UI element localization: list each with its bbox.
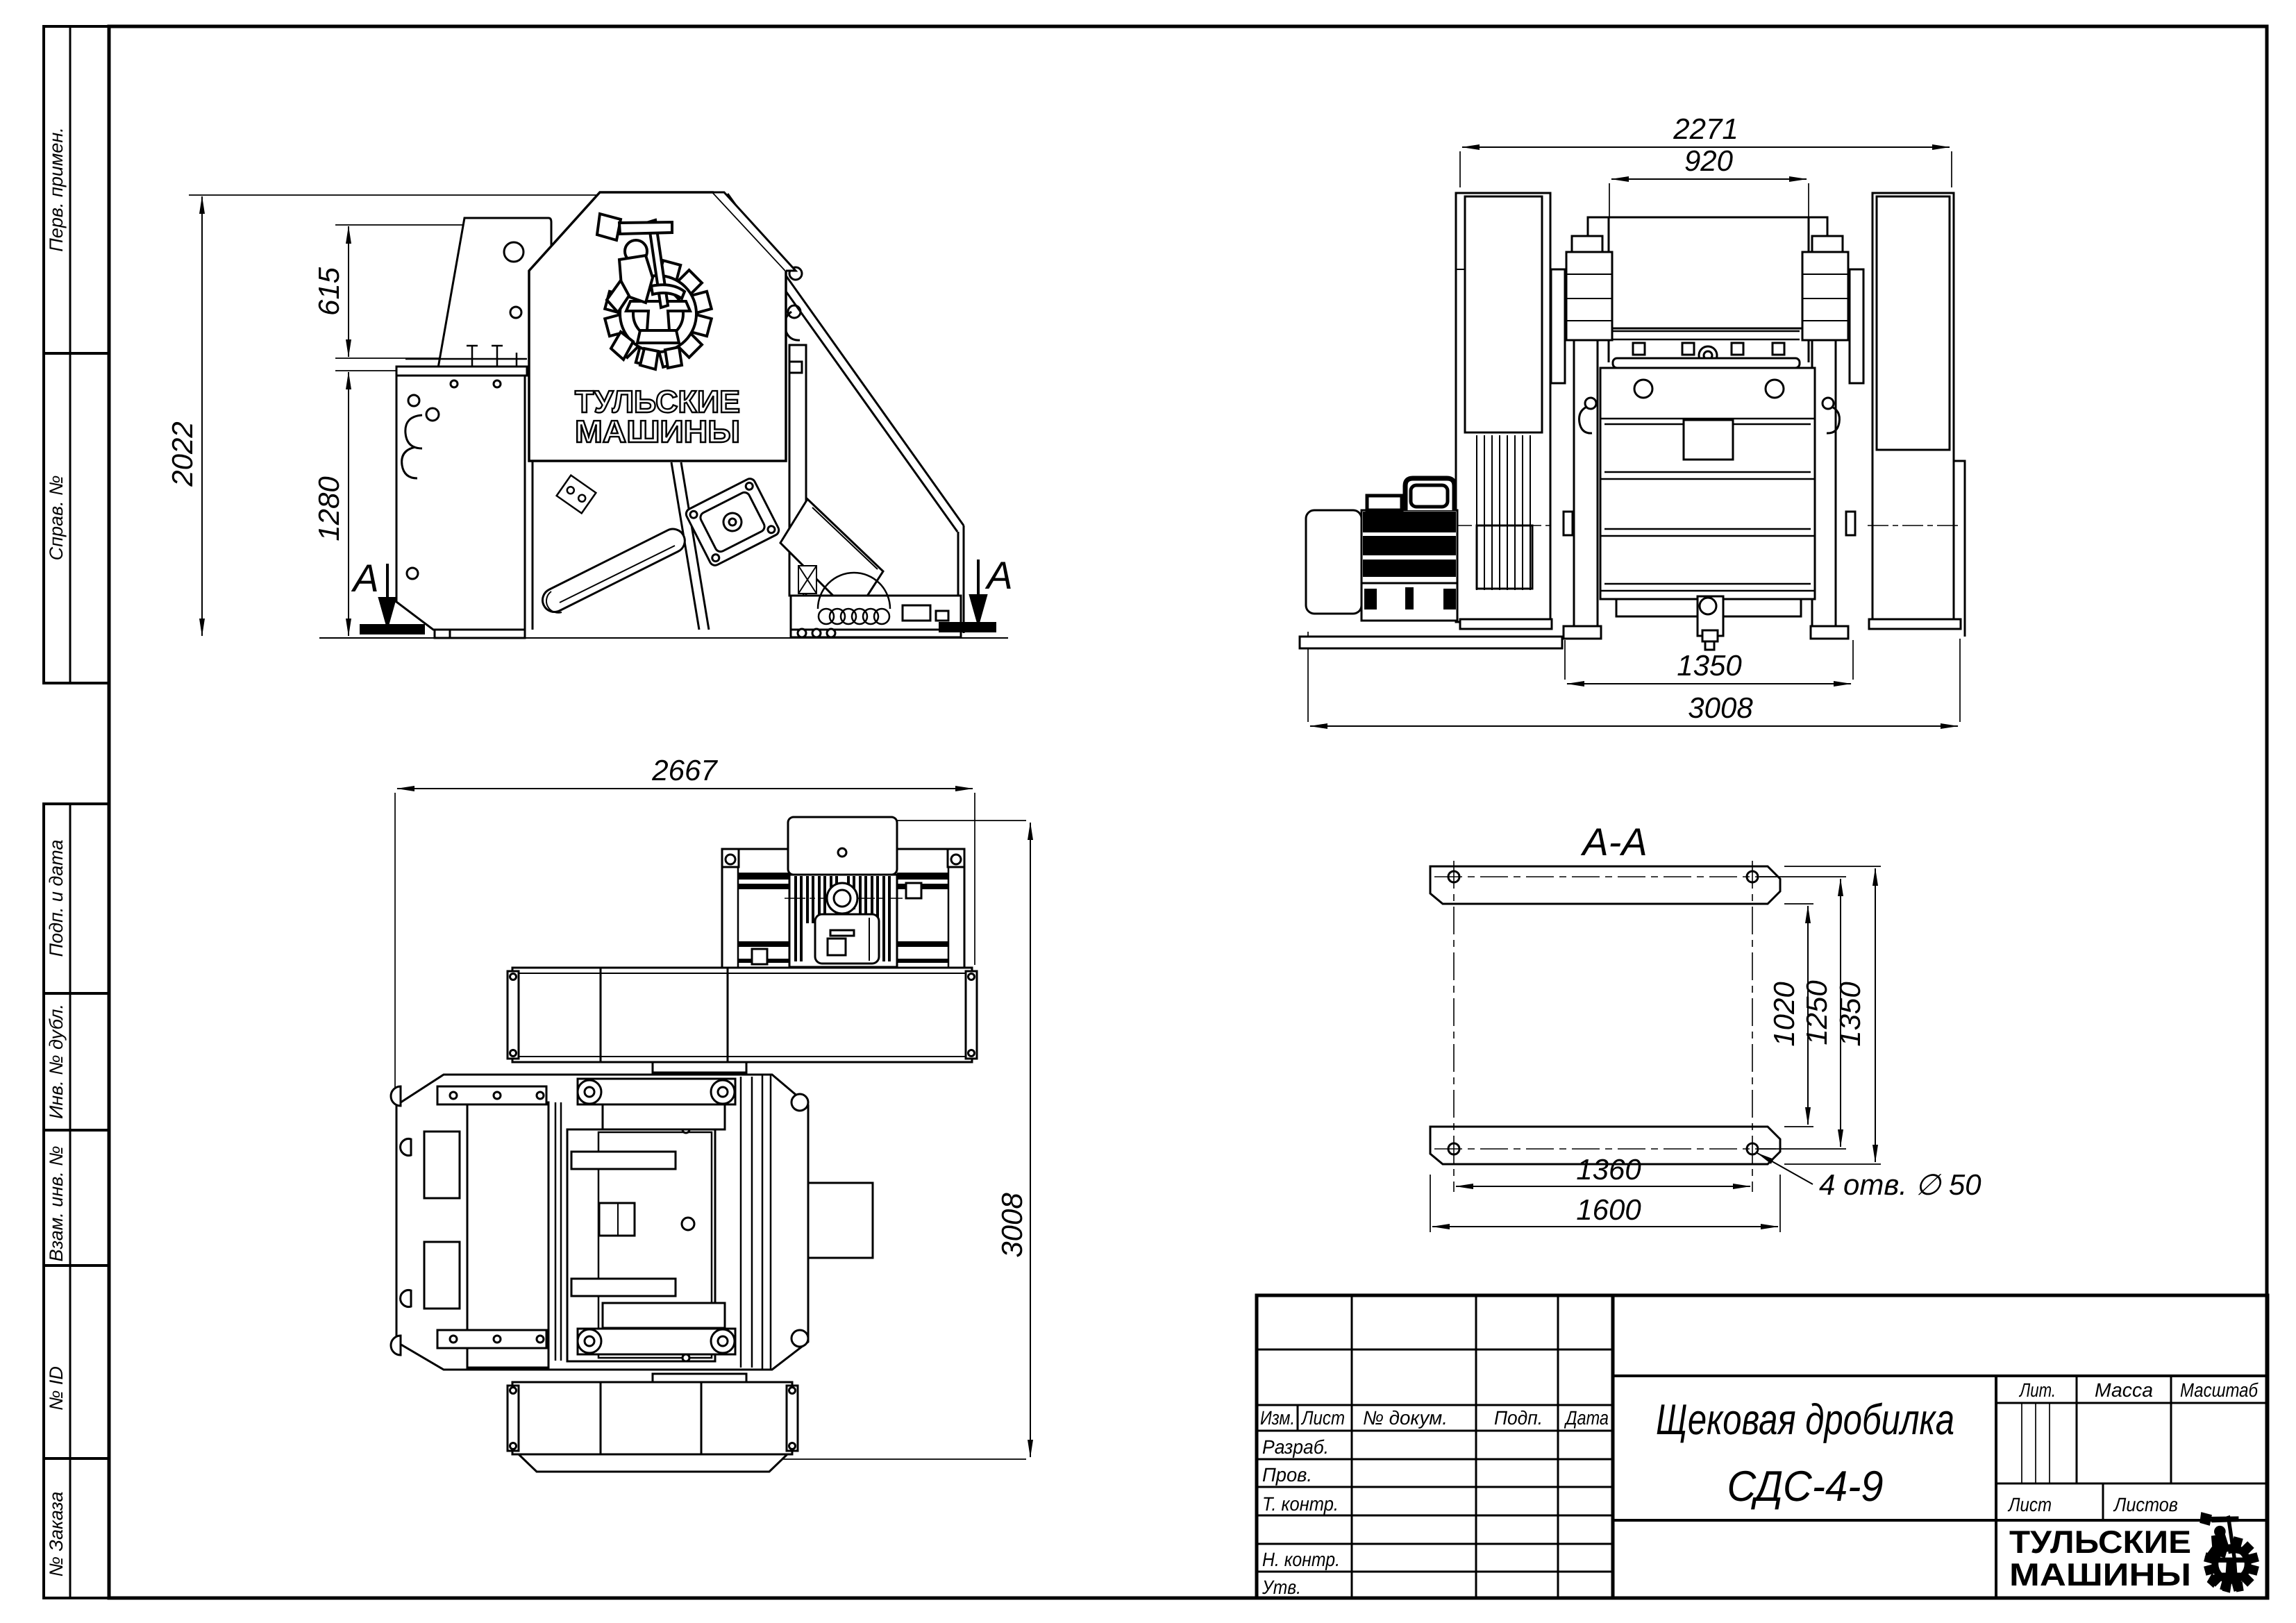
svg-text:Т. контр.: Т. контр.: [1262, 1493, 1339, 1515]
svg-text:Щековая дробилка: Щековая дробилка: [1656, 1396, 1954, 1444]
svg-text:4 отв. ∅ 50: 4 отв. ∅ 50: [1819, 1168, 1981, 1201]
svg-text:№ ID: № ID: [46, 1366, 67, 1411]
svg-text:МАШИНЫ: МАШИНЫ: [2009, 1556, 2191, 1592]
svg-text:2022: 2022: [166, 421, 199, 487]
svg-text:№ Заказа: № Заказа: [46, 1492, 67, 1577]
svg-text:А-А: А-А: [1580, 820, 1647, 864]
svg-text:А: А: [351, 556, 378, 600]
svg-text:Подп.: Подп.: [1494, 1407, 1543, 1429]
svg-text:Масштаб: Масштаб: [2180, 1379, 2259, 1401]
svg-text:СДС-4-9: СДС-4-9: [1727, 1463, 1884, 1511]
svg-text:ТУЛЬСКИЕ: ТУЛЬСКИЕ: [2009, 1524, 2191, 1560]
svg-text:2271: 2271: [1673, 112, 1738, 145]
svg-text:1020: 1020: [1768, 982, 1800, 1047]
svg-text:Н. контр.: Н. контр.: [1262, 1549, 1340, 1570]
svg-text:Перв. примен.: Перв. примен.: [46, 127, 67, 251]
svg-text:1350: 1350: [1677, 649, 1742, 682]
svg-text:Лит.: Лит.: [2018, 1379, 2056, 1401]
svg-text:Лист: Лист: [2007, 1494, 2052, 1515]
svg-text:Листов: Листов: [2113, 1494, 2178, 1515]
svg-text:Инв. № дубл.: Инв. № дубл.: [46, 1004, 67, 1119]
svg-text:1360: 1360: [1576, 1153, 1641, 1186]
svg-text:Лист: Лист: [1300, 1407, 1345, 1429]
svg-text:Изм.: Изм.: [1260, 1407, 1295, 1429]
svg-text:615: 615: [312, 267, 345, 316]
svg-text:МАШИНЫ: МАШИНЫ: [575, 414, 740, 449]
svg-text:Пров.: Пров.: [1262, 1464, 1312, 1486]
svg-text:2667: 2667: [651, 754, 718, 787]
svg-text:920: 920: [1684, 144, 1734, 177]
svg-text:Взам. инв. №: Взам. инв. №: [46, 1146, 67, 1262]
svg-text:1250: 1250: [1800, 980, 1833, 1045]
svg-text:Масса: Масса: [2095, 1379, 2153, 1401]
svg-text:Дата: Дата: [1564, 1407, 1609, 1429]
svg-text:1350: 1350: [1834, 982, 1866, 1047]
svg-text:Утв.: Утв.: [1262, 1576, 1301, 1598]
svg-text:Подп. и дата: Подп. и дата: [46, 839, 67, 957]
svg-text:Разраб.: Разраб.: [1262, 1436, 1329, 1458]
svg-text:А: А: [984, 553, 1012, 597]
svg-text:№ докум.: № докум.: [1363, 1407, 1448, 1429]
svg-text:3008: 3008: [996, 1193, 1028, 1258]
svg-text:1600: 1600: [1576, 1193, 1641, 1226]
svg-text:Справ. №: Справ. №: [46, 476, 67, 561]
svg-text:1280: 1280: [312, 476, 345, 541]
svg-text:3008: 3008: [1688, 691, 1753, 724]
